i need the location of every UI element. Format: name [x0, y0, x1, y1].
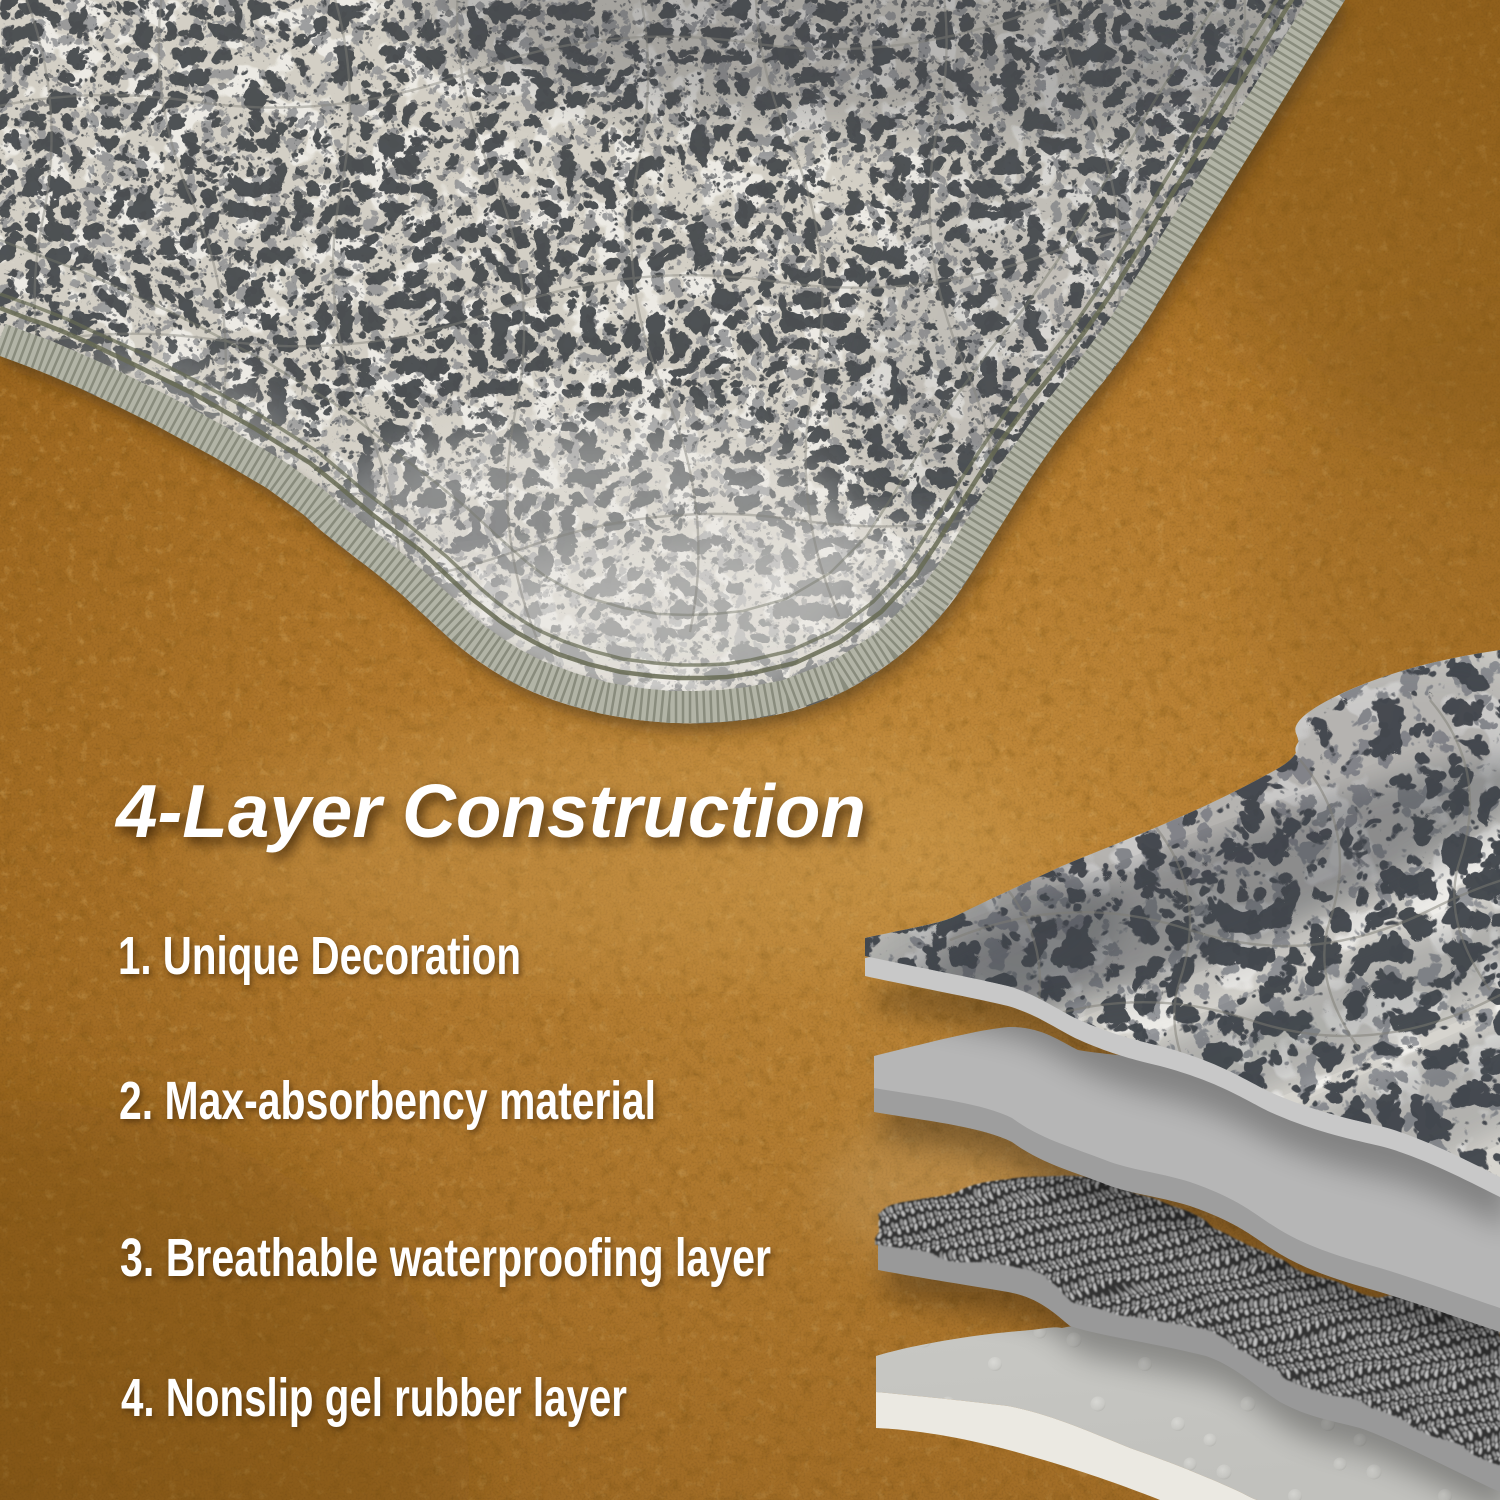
svg-text:3. Breathable waterproofing la: 3. Breathable waterproofing layer [120, 1228, 771, 1288]
svg-text:4-Layer Construction: 4-Layer Construction [114, 769, 866, 853]
svg-text:1. Unique Decoration: 1. Unique Decoration [118, 926, 521, 986]
svg-text:4. Nonslip gel rubber layer: 4. Nonslip gel rubber layer [121, 1368, 627, 1428]
svg-text:2. Max-absorbency material: 2. Max-absorbency material [119, 1071, 656, 1131]
